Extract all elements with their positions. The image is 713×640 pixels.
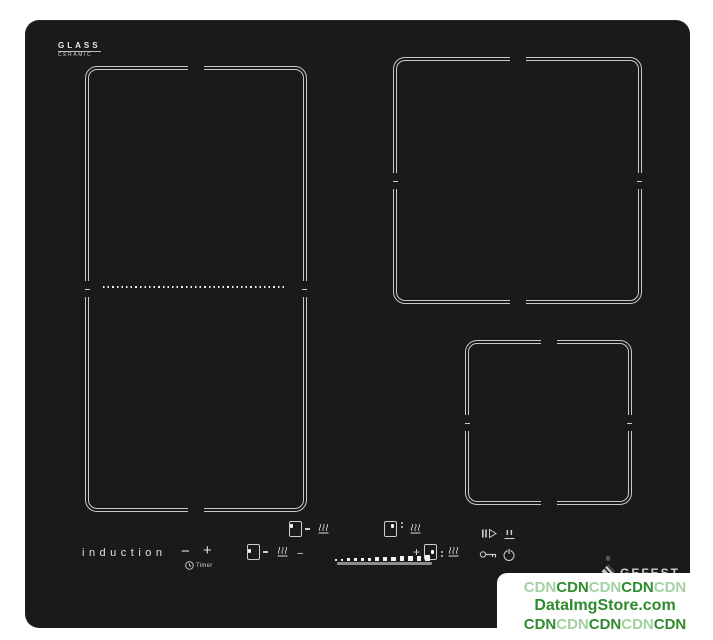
zone-tick — [85, 289, 90, 290]
slider-plus-button[interactable]: + — [413, 546, 420, 558]
watermark-segment: CDN — [654, 579, 687, 596]
zone-position-dot — [290, 524, 293, 528]
minus-mark — [263, 551, 268, 553]
power-level-dot[interactable] — [368, 558, 372, 562]
clock-icon — [185, 561, 194, 570]
zone-gap — [188, 505, 204, 513]
zone-tick — [393, 181, 398, 182]
keep-warm-icon-front-right[interactable] — [447, 546, 460, 557]
glass-ceramic-line2: CERAMIC — [58, 53, 101, 58]
watermark-segment: CDN — [524, 579, 557, 596]
keep-warm-icon-rear-right[interactable] — [409, 523, 422, 534]
timer-label: Timer — [196, 563, 213, 569]
watermark-line2: DataImgStore.com — [534, 597, 675, 616]
zone-tick — [637, 181, 642, 182]
watermark-segment: CDN — [589, 616, 622, 633]
power-level-dot[interactable] — [425, 555, 430, 561]
bridge-zone-dotted-divider — [103, 286, 285, 288]
product-photo: GLASS CERAMIC — [0, 0, 713, 640]
power-level-dot[interactable] — [375, 557, 379, 561]
timer-plus-button[interactable]: + — [203, 543, 212, 558]
cooking-zone-left-bridged — [85, 66, 307, 512]
watermark-segment: CDN — [556, 616, 589, 633]
dots-mark — [441, 551, 443, 553]
watermark-line1: CDNCDNCDNCDNCDN — [524, 579, 687, 597]
keep-warm-icon-rear-left[interactable] — [317, 523, 330, 534]
zone-gap — [510, 297, 526, 305]
power-level-dot[interactable] — [391, 557, 395, 561]
power-level-dot[interactable] — [335, 559, 337, 561]
watermark-segment: CDN — [621, 616, 654, 633]
glass-ceramic-logo: GLASS CERAMIC — [58, 36, 101, 58]
power-level-dot[interactable] — [354, 558, 357, 561]
glass-ceramic-line1: GLASS — [58, 42, 101, 52]
power-level-dot[interactable] — [383, 557, 387, 561]
watermark-segment: CDN — [654, 616, 687, 633]
induction-label: induction — [82, 547, 167, 559]
power-level-dot[interactable] — [361, 558, 364, 561]
cooking-zone-front-right — [465, 340, 632, 505]
power-level-dot[interactable] — [341, 559, 343, 561]
watermark-segment: CDN — [524, 616, 557, 633]
minus-mark — [305, 528, 310, 530]
zone-position-dot — [248, 549, 251, 553]
slider-minus-button[interactable]: − — [297, 549, 303, 560]
registered-mark: ® — [606, 557, 610, 563]
dots-mark — [401, 522, 403, 524]
zone-gap — [510, 56, 526, 64]
timer-minus-button[interactable]: − — [181, 544, 190, 559]
cooktop-panel: GLASS CERAMIC — [25, 20, 690, 628]
power-button[interactable] — [502, 548, 516, 562]
zone-gap — [541, 498, 557, 506]
zone-gap — [541, 339, 557, 347]
watermark-box: CDNCDNCDNCDNCDN DataImgStore.com CDNCDNC… — [497, 573, 713, 640]
watermark-segment: CDN — [556, 579, 589, 596]
watermark-line3: CDNCDNCDNCDNCDN — [524, 616, 687, 634]
power-level-dot[interactable] — [400, 556, 405, 561]
zone-select-front-left-button[interactable] — [247, 544, 269, 559]
timer-control[interactable]: Timer — [185, 561, 213, 570]
child-lock-key-button[interactable] — [479, 550, 498, 559]
watermark-segment: CDN — [621, 579, 654, 596]
bridge-function-icon[interactable] — [503, 529, 516, 540]
zone-tick — [627, 423, 632, 424]
zone-gap — [188, 65, 204, 73]
keep-warm-icon-front-left[interactable] — [276, 546, 289, 557]
power-slider-track[interactable] — [337, 562, 432, 565]
zone-select-rear-right-button[interactable] — [384, 521, 406, 536]
cooking-zone-rear-right — [393, 57, 642, 304]
watermark-segment: CDN — [589, 579, 622, 596]
zone-tick — [465, 423, 470, 424]
pause-resume-button[interactable] — [481, 528, 498, 540]
zone-tick — [302, 289, 307, 290]
zone-select-rear-left-button[interactable] — [289, 521, 311, 536]
power-level-dot[interactable] — [347, 558, 350, 561]
zone-position-dot — [391, 524, 394, 528]
